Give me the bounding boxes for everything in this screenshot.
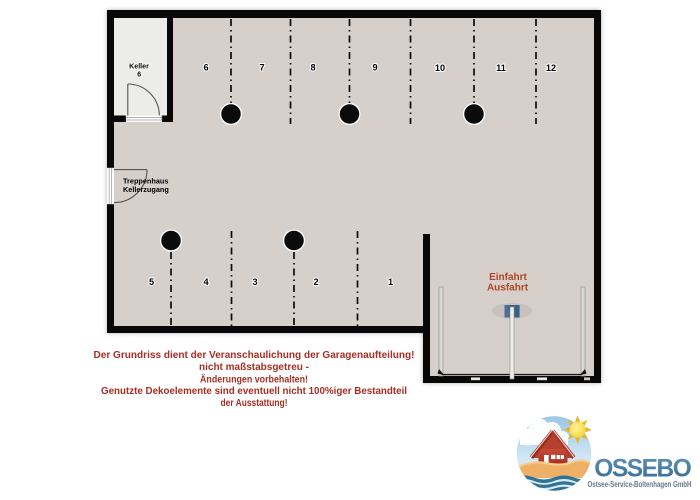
svg-text:Änderungen vorbehalten!: Änderungen vorbehalten! xyxy=(200,372,308,385)
svg-text:6: 6 xyxy=(203,62,208,72)
svg-text:Ostsee-Service-Boltenhagen Gmb: Ostsee-Service-Boltenhagen GmbH xyxy=(588,480,692,489)
svg-text:Einfahrt: Einfahrt xyxy=(489,272,527,283)
svg-text:2: 2 xyxy=(313,277,318,287)
svg-text:12: 12 xyxy=(546,63,556,73)
svg-text:4: 4 xyxy=(203,277,209,287)
svg-text:Ausfahrt: Ausfahrt xyxy=(487,282,529,293)
svg-text:9: 9 xyxy=(372,62,377,72)
svg-text:Kellerzugang: Kellerzugang xyxy=(123,185,169,194)
svg-text:OSSEBO: OSSEBO xyxy=(594,455,691,483)
svg-text:6: 6 xyxy=(137,71,141,79)
svg-text:Keller: Keller xyxy=(129,62,149,70)
svg-text:der Ausstattung!: der Ausstattung! xyxy=(221,398,288,409)
svg-text:11: 11 xyxy=(496,63,506,73)
svg-text:7: 7 xyxy=(259,62,264,72)
svg-text:5: 5 xyxy=(149,277,154,287)
svg-text:1: 1 xyxy=(388,277,393,287)
svg-text:Der Grundriss dient der Verans: Der Grundriss dient der Veranschaulichun… xyxy=(94,350,415,361)
svg-text:8: 8 xyxy=(310,62,315,72)
svg-text:Genutzte Dekoelemente sind eve: Genutzte Dekoelemente sind eventuell nic… xyxy=(101,386,407,397)
svg-text:3: 3 xyxy=(252,277,257,287)
svg-text:10: 10 xyxy=(435,63,445,73)
svg-text:nicht maßstabsgetreu -: nicht maßstabsgetreu - xyxy=(199,362,310,373)
